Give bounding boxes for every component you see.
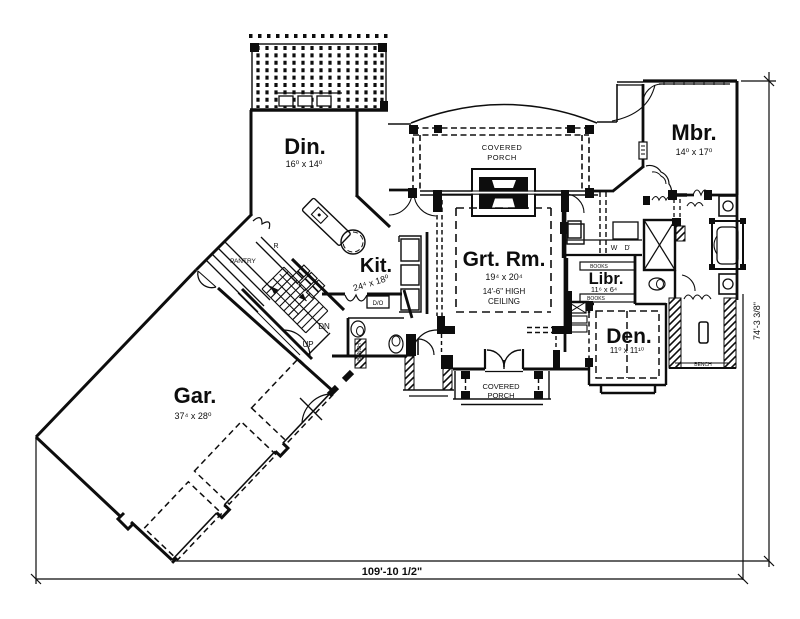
svg-text:Grt. Rm.: Grt. Rm. (463, 248, 546, 271)
svg-text:R: R (273, 243, 278, 250)
svg-text:BOOKS: BOOKS (587, 296, 605, 302)
svg-text:Din.: Din. (284, 134, 326, 159)
svg-text:Gar.: Gar. (174, 383, 217, 408)
svg-text:BENCH: BENCH (694, 362, 712, 368)
svg-text:Den.: Den. (606, 325, 652, 348)
svg-text:BENCH: BENCH (357, 343, 363, 361)
svg-text:W: W (611, 245, 618, 252)
svg-text:37⁴ x 28⁰: 37⁴ x 28⁰ (175, 411, 212, 421)
svg-text:19⁴ x 20⁴: 19⁴ x 20⁴ (485, 272, 522, 282)
svg-text:14⁰ x 17⁰: 14⁰ x 17⁰ (676, 147, 713, 157)
svg-text:11⁰ x 11¹⁰: 11⁰ x 11¹⁰ (610, 346, 644, 355)
svg-text:109'-10 1/2": 109'-10 1/2" (362, 566, 422, 578)
svg-text:PANTRY: PANTRY (230, 258, 256, 265)
svg-text:74'-3 3/8": 74'-3 3/8" (752, 302, 762, 340)
svg-text:COVERED: COVERED (482, 143, 523, 152)
svg-text:D/O: D/O (373, 301, 384, 307)
svg-text:14'-6" HIGH: 14'-6" HIGH (483, 287, 526, 296)
svg-text:COVERED: COVERED (482, 382, 520, 391)
svg-text:11⁶ x 6⁴: 11⁶ x 6⁴ (591, 285, 617, 294)
svg-text:Mbr.: Mbr. (671, 120, 716, 145)
svg-text:DN: DN (318, 322, 330, 331)
svg-text:UP: UP (302, 340, 313, 349)
svg-text:PORCH: PORCH (487, 153, 517, 162)
svg-text:D: D (624, 245, 629, 252)
svg-text:PORCH: PORCH (487, 391, 514, 400)
svg-text:CEILING: CEILING (488, 297, 520, 306)
svg-text:BOOKS: BOOKS (590, 264, 608, 270)
svg-text:16⁰ x 14⁰: 16⁰ x 14⁰ (286, 159, 323, 169)
